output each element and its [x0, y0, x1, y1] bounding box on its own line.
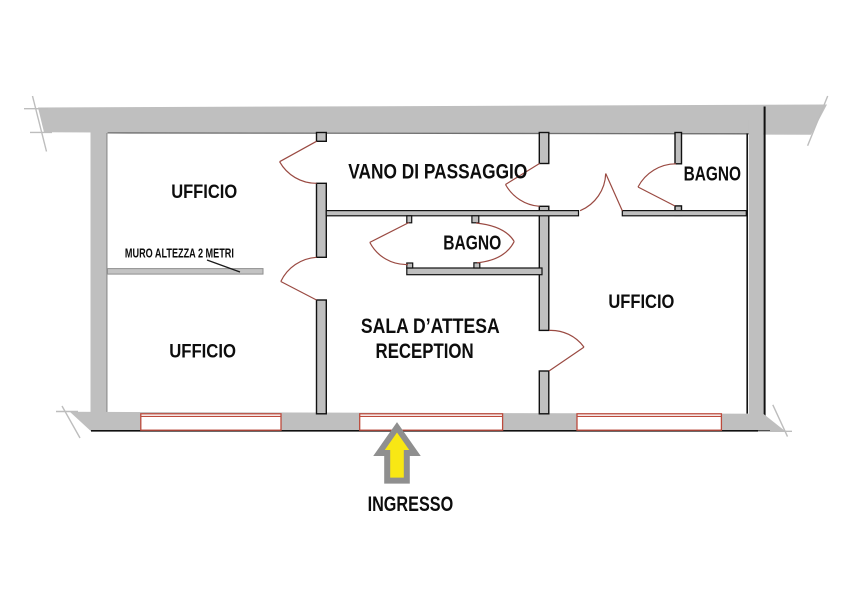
svg-text:BAGNO: BAGNO — [684, 164, 741, 186]
svg-text:RECEPTION: RECEPTION — [376, 339, 474, 363]
svg-text:VANO DI PASSAGGIO: VANO DI PASSAGGIO — [348, 160, 527, 184]
svg-text:MURO ALTEZZA 2 METRI: MURO ALTEZZA 2 METRI — [125, 247, 234, 261]
svg-text:UFFICIO: UFFICIO — [608, 291, 674, 313]
svg-text:SALA D’ATTESA: SALA D’ATTESA — [361, 314, 500, 338]
svg-text:UFFICIO: UFFICIO — [171, 182, 237, 203]
svg-text:BAGNO: BAGNO — [443, 232, 501, 254]
svg-text:INGRESSO: INGRESSO — [368, 493, 454, 516]
svg-text:UFFICIO: UFFICIO — [169, 342, 236, 363]
